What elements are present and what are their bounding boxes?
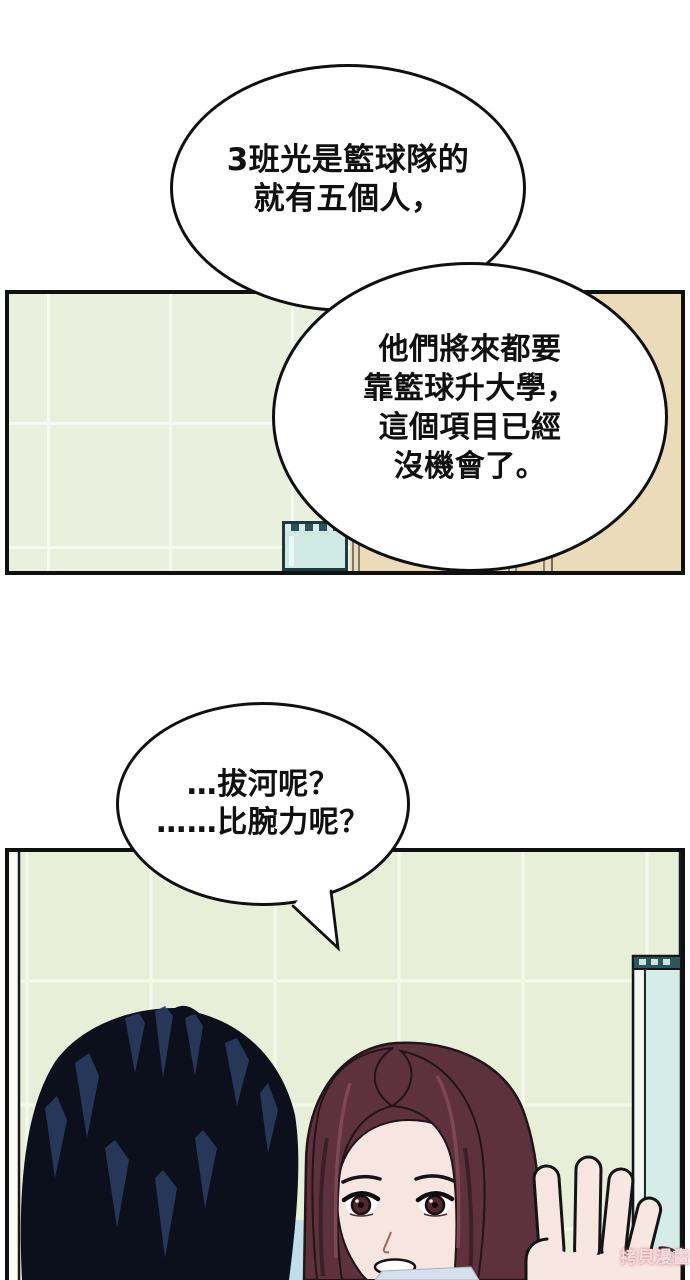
bubble2-line1: 他們將來都要: [363, 330, 577, 369]
bubble2-line3: 這個項目已經: [363, 408, 577, 447]
bubble2-line4: 沒機會了。: [363, 447, 577, 486]
speech-bubble-3: …拔河呢？ ……比腕力呢？: [116, 702, 410, 906]
speech-bubble-3-text: …拔河呢？ ……比腕力呢？: [156, 766, 370, 842]
bubble1-line1: 3班光是籃球隊的: [227, 141, 470, 180]
speech-bubble-2: 他們將來都要 靠籃球升大學， 這個項目已經 沒機會了。: [272, 262, 668, 572]
comic-page: 3班光是籃球隊的 就有五個人， 他們將來都要 靠籃球升大學， 這個項目已經 沒機…: [0, 0, 690, 1280]
speech-bubble-2-text: 他們將來都要 靠籃球升大學， 這個項目已經 沒機會了。: [363, 330, 577, 486]
fish-tank-glint: [289, 536, 294, 566]
bubble2-line2: 靠籃球升大學，: [363, 369, 577, 408]
speech-bubble-1-text: 3班光是籃球隊的 就有五個人，: [227, 141, 470, 219]
bubble3-line1: …拔河呢？: [156, 766, 370, 804]
speech-bubble-3-tail: [280, 870, 350, 955]
watermark: 拷貝漫畫: [620, 1243, 690, 1268]
bubble3-line2: ……比腕力呢？: [156, 804, 370, 842]
bubble1-line2: 就有五個人，: [227, 180, 470, 219]
left-wall-edge: [9, 848, 18, 1280]
